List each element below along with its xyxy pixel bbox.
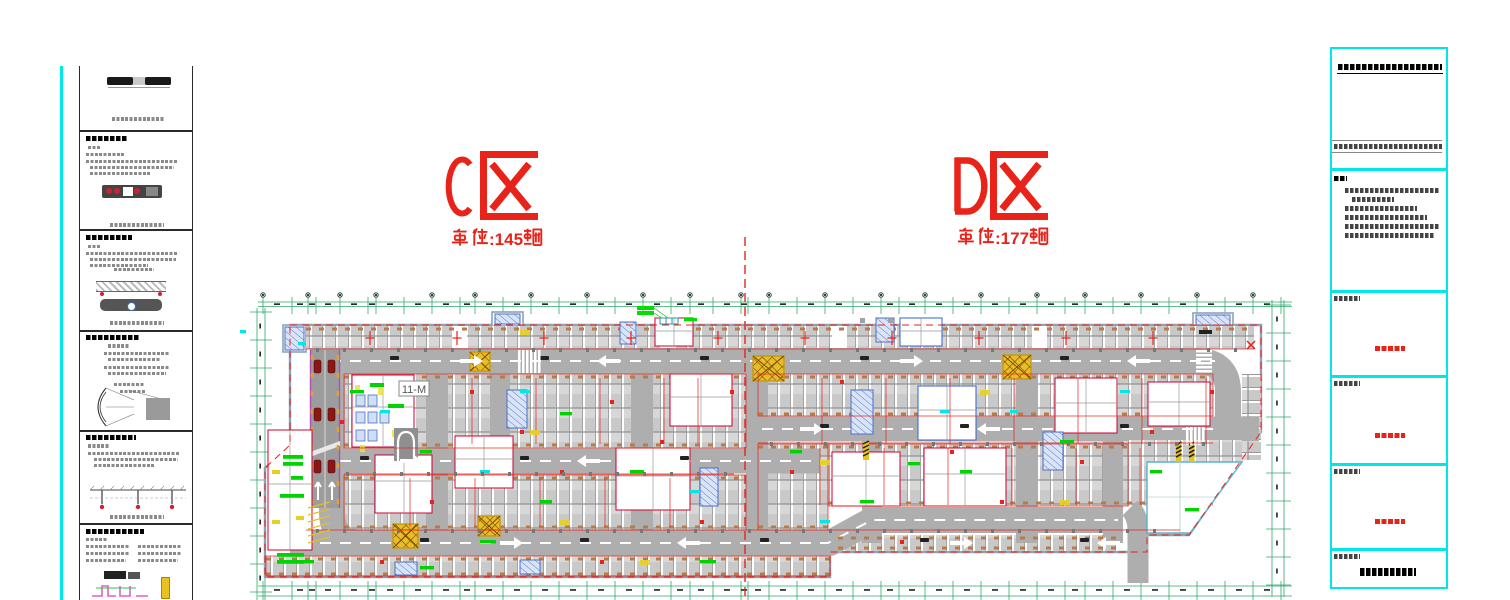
svg-text::145: :145 — [489, 230, 523, 249]
svg-text::177: :177 — [995, 229, 1029, 248]
svg-text:11-M: 11-M — [402, 384, 426, 396]
